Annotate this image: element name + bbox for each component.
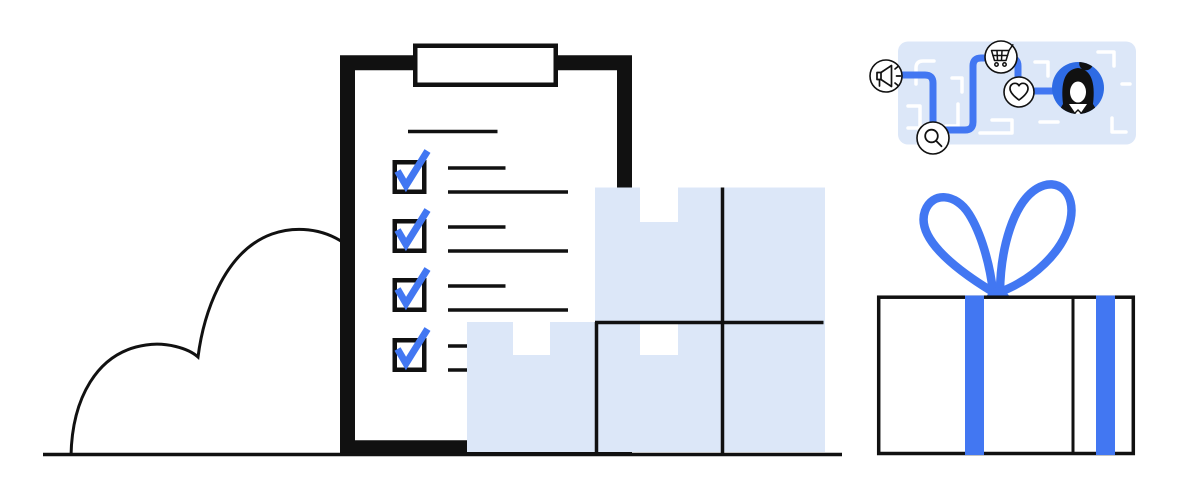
illustration-canvas [0, 0, 1179, 500]
bow-loop-right [1000, 184, 1072, 292]
gift-ribbon-side [1096, 296, 1115, 456]
cloud-outline [71, 229, 350, 456]
journey-stop-research [917, 122, 949, 154]
package-notch [640, 322, 678, 355]
icon-circle [1004, 77, 1034, 107]
clipboard-clip [415, 46, 556, 85]
journey-stop-purchase [985, 41, 1017, 73]
gift-box [879, 184, 1134, 455]
package-notch [640, 188, 678, 223]
bow-loop-left [924, 197, 993, 292]
package-box [595, 188, 825, 323]
package-notch [513, 322, 550, 355]
journey-stop-loyalty [1004, 77, 1034, 107]
gift-box-body [879, 297, 1134, 453]
journey-map [870, 41, 1136, 154]
gift-ribbon-front [965, 296, 984, 456]
avatar-face [1070, 82, 1086, 103]
journey-stop-awareness [870, 60, 902, 92]
icon-circle [917, 122, 949, 154]
